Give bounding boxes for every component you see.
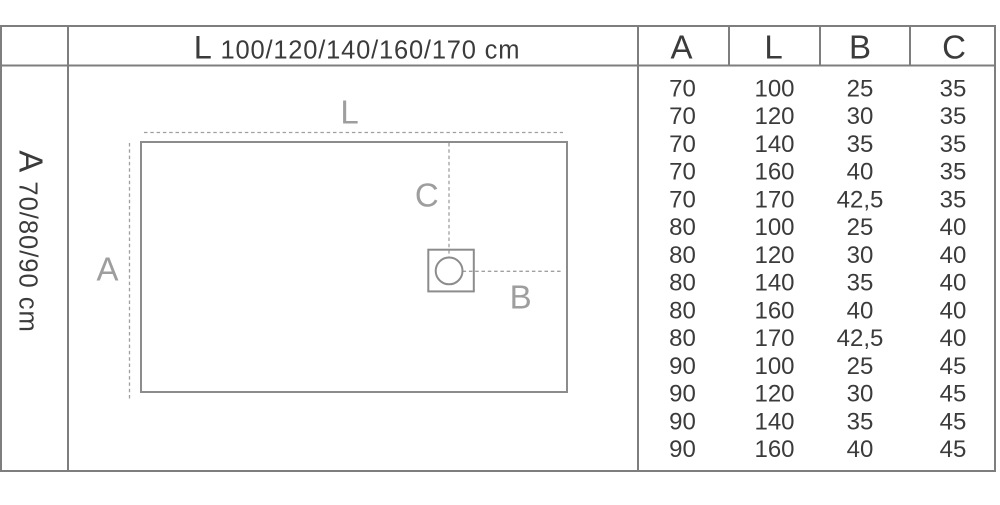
svg-text:30: 30 xyxy=(847,381,874,408)
svg-text:90: 90 xyxy=(669,436,696,463)
svg-text:40: 40 xyxy=(940,297,967,324)
svg-text:120: 120 xyxy=(754,103,794,130)
svg-text:100: 100 xyxy=(754,214,794,241)
svg-text:80: 80 xyxy=(669,297,696,324)
svg-text:42,5: 42,5 xyxy=(837,186,884,213)
svg-text:70: 70 xyxy=(669,159,696,186)
svg-text:70: 70 xyxy=(669,103,696,130)
svg-text:160: 160 xyxy=(754,297,794,324)
svg-text:C: C xyxy=(415,177,439,214)
svg-text:90: 90 xyxy=(669,408,696,435)
svg-text:160: 160 xyxy=(754,159,794,186)
svg-text:80: 80 xyxy=(669,214,696,241)
svg-text:A: A xyxy=(96,251,118,288)
svg-text:35: 35 xyxy=(847,131,874,158)
svg-text:35: 35 xyxy=(847,408,874,435)
svg-text:25: 25 xyxy=(847,214,874,241)
svg-text:45: 45 xyxy=(940,436,967,463)
svg-text:40: 40 xyxy=(940,325,967,352)
svg-text:35: 35 xyxy=(940,131,967,158)
svg-text:140: 140 xyxy=(754,270,794,297)
svg-text:40: 40 xyxy=(847,159,874,186)
svg-text:A: A xyxy=(670,29,692,66)
svg-text:45: 45 xyxy=(940,381,967,408)
svg-text:35: 35 xyxy=(940,186,967,213)
svg-text:170: 170 xyxy=(754,186,794,213)
svg-text:120: 120 xyxy=(754,381,794,408)
svg-text:C: C xyxy=(942,29,966,66)
svg-text:25: 25 xyxy=(847,353,874,380)
svg-text:40: 40 xyxy=(940,270,967,297)
svg-text:140: 140 xyxy=(754,131,794,158)
svg-text:90: 90 xyxy=(669,353,696,380)
svg-text:42,5: 42,5 xyxy=(837,325,884,352)
svg-text:100: 100 xyxy=(754,353,794,380)
svg-text:40: 40 xyxy=(847,436,874,463)
svg-text:35: 35 xyxy=(940,159,967,186)
svg-text:70: 70 xyxy=(669,131,696,158)
svg-text:80: 80 xyxy=(669,325,696,352)
svg-text:35: 35 xyxy=(847,270,874,297)
svg-text:40: 40 xyxy=(940,242,967,269)
svg-text:120: 120 xyxy=(754,242,794,269)
svg-text:40: 40 xyxy=(847,297,874,324)
svg-text:70: 70 xyxy=(669,75,696,102)
svg-text:30: 30 xyxy=(847,103,874,130)
svg-text:30: 30 xyxy=(847,242,874,269)
svg-text:L: L xyxy=(764,29,782,66)
svg-text:B: B xyxy=(849,29,871,66)
svg-text:170: 170 xyxy=(754,325,794,352)
svg-text:45: 45 xyxy=(940,408,967,435)
svg-text:90: 90 xyxy=(669,381,696,408)
svg-text:45: 45 xyxy=(940,353,967,380)
svg-text:100: 100 xyxy=(754,75,794,102)
svg-text:25: 25 xyxy=(847,75,874,102)
svg-text:160: 160 xyxy=(754,436,794,463)
svg-text:70: 70 xyxy=(669,186,696,213)
svg-text:80: 80 xyxy=(669,242,696,269)
svg-text:35: 35 xyxy=(940,75,967,102)
svg-text:L: L xyxy=(340,94,358,131)
svg-text:35: 35 xyxy=(940,103,967,130)
svg-text:40: 40 xyxy=(940,214,967,241)
svg-text:B: B xyxy=(510,278,532,315)
svg-text:80: 80 xyxy=(669,270,696,297)
svg-text:140: 140 xyxy=(754,408,794,435)
